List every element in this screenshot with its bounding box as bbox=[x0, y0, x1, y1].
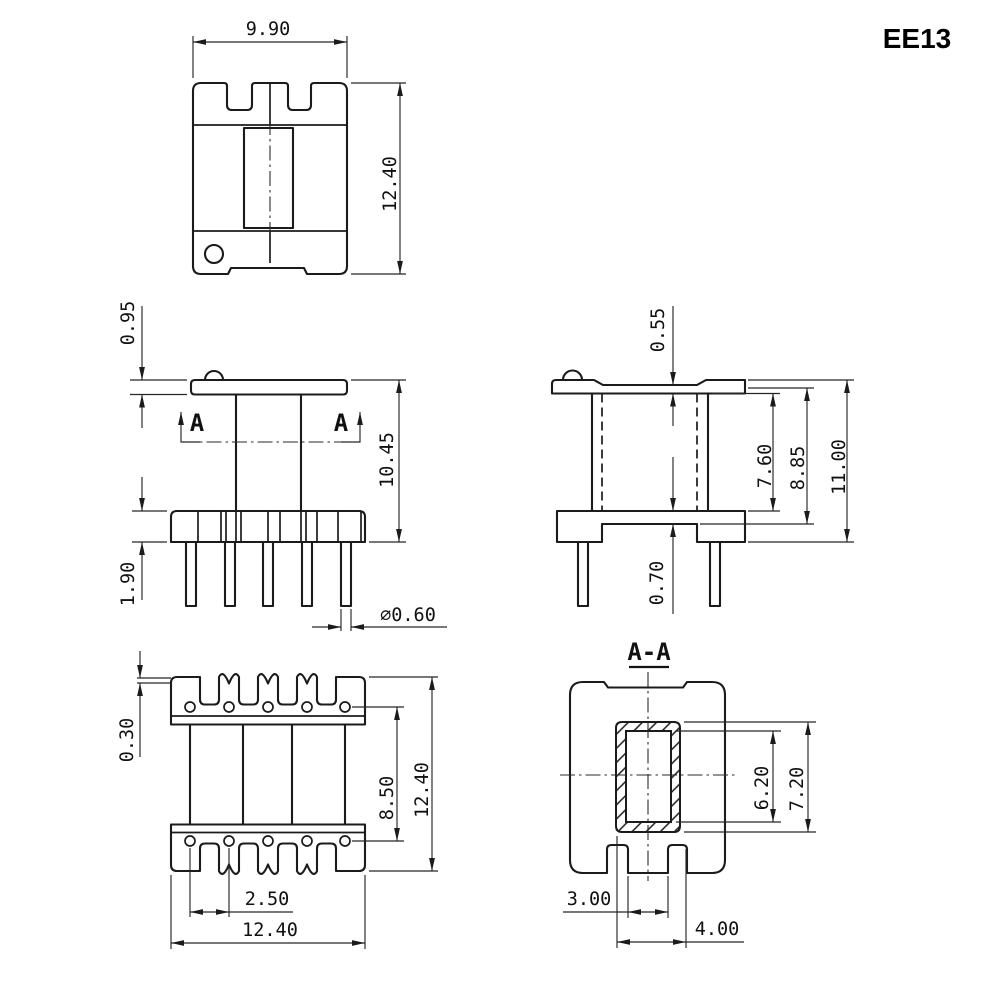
pin bbox=[578, 542, 588, 606]
view-section-aa: A-A 6.20 7.20 3.00 4.00 bbox=[560, 638, 816, 948]
core-center-window bbox=[244, 128, 293, 228]
dim-section-tube-height: 7.20 bbox=[787, 767, 808, 812]
top-flange bbox=[191, 380, 347, 395]
pins-front bbox=[186, 542, 351, 606]
pin bbox=[302, 542, 312, 606]
dim-pin-pitch: 2.50 bbox=[245, 889, 290, 910]
view-bobbin-side: 0.55 7.60 8.85 11.00 0.70 bbox=[552, 306, 854, 614]
dim-bobbin-overall-height: 12.40 bbox=[412, 762, 433, 818]
pin bbox=[225, 542, 235, 606]
winding-section-edges bbox=[190, 725, 345, 825]
mounting-hole bbox=[205, 245, 223, 263]
dim-core-width: 9.90 bbox=[246, 19, 291, 40]
pin bbox=[710, 542, 720, 606]
engineering-drawing: 9.90 12.40 A A bbox=[0, 0, 1000, 1000]
dim-rim-step: 0.55 bbox=[648, 308, 669, 353]
cutting-plane-label-left: A bbox=[190, 409, 205, 437]
dim-base-height: 1.90 bbox=[118, 562, 139, 607]
dim-center-leg-width: 3.00 bbox=[567, 889, 612, 910]
dim-core-height: 12.40 bbox=[380, 156, 401, 212]
part-number-label: EE13 bbox=[883, 23, 952, 54]
section-view-title: A-A bbox=[627, 638, 671, 666]
pin-base-partitions bbox=[198, 511, 361, 542]
side-top-flange bbox=[552, 380, 745, 394]
drawing-sheet: 9.90 12.40 A A bbox=[0, 0, 1000, 1000]
view-bobbin-top: 0.30 8.50 12.40 2.50 12.40 bbox=[117, 651, 438, 949]
dim-window-height: 7.60 bbox=[755, 444, 776, 489]
dim-tube-width: 4.00 bbox=[695, 919, 740, 940]
view-bobbin-front: A A 0.95 10.45 1.90 ⌀0.60 bbox=[118, 301, 447, 631]
dim-body-height: 8.85 bbox=[788, 446, 809, 491]
dim-edge-lip: 0.30 bbox=[117, 718, 138, 763]
dim-bobbin-overall-width: 12.40 bbox=[242, 920, 298, 941]
dim-pin-row-spacing: 8.50 bbox=[377, 776, 398, 821]
pin bbox=[263, 542, 273, 606]
dim-pin-diameter: ⌀0.60 bbox=[380, 605, 436, 626]
top-rail bbox=[171, 674, 365, 724]
positioning-boss bbox=[205, 371, 223, 380]
side-boss bbox=[563, 371, 582, 381]
side-base bbox=[557, 511, 745, 542]
dim-flange-thickness: 0.95 bbox=[118, 301, 139, 346]
dim-section-window-height: 6.20 bbox=[752, 766, 773, 811]
dim-overall-height: 11.00 bbox=[829, 439, 850, 495]
pin bbox=[341, 542, 351, 606]
cutting-plane-label-right: A bbox=[334, 409, 349, 437]
pin bbox=[186, 542, 196, 606]
dim-base-plate: 0.70 bbox=[647, 561, 668, 606]
view-core-top: 9.90 12.40 bbox=[193, 19, 406, 274]
dim-flange-to-base: 10.45 bbox=[377, 432, 398, 488]
